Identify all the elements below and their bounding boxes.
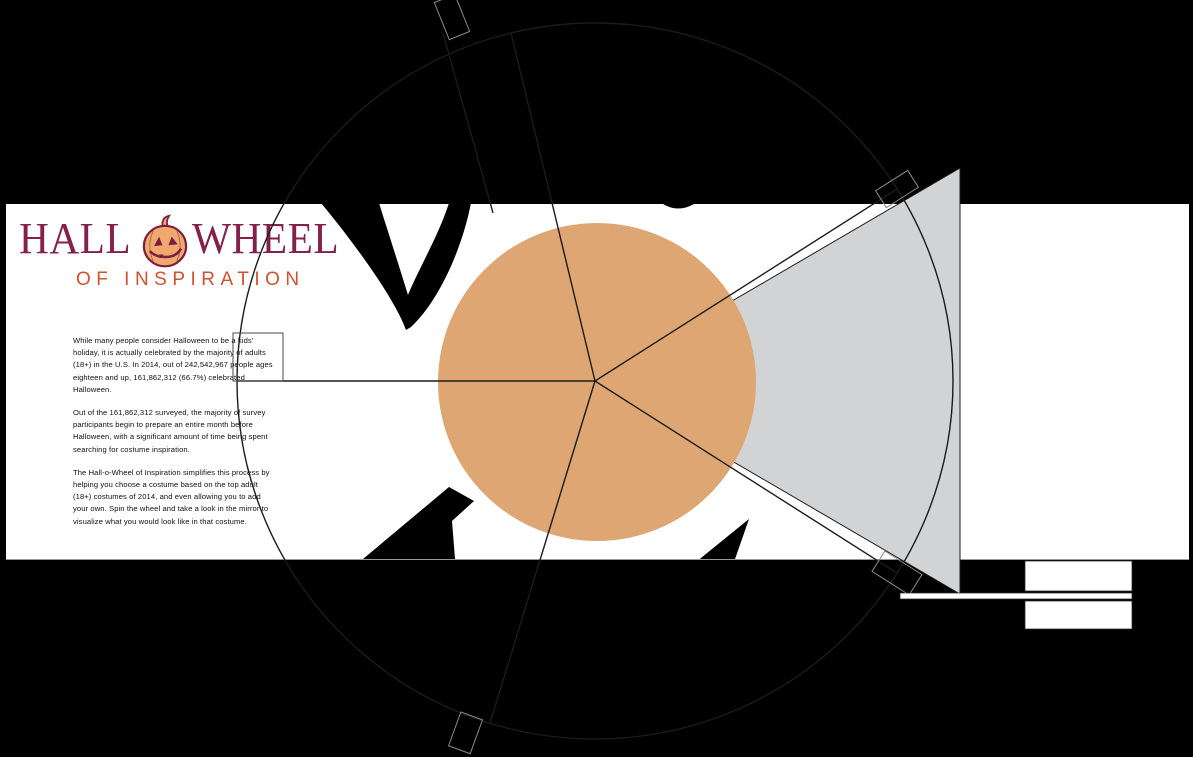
mirror-frame (900, 561, 1132, 629)
mirror-rect-bottom (1025, 601, 1132, 629)
page-subtitle: OF INSPIRATION (76, 269, 305, 291)
pumpkin-icon (139, 214, 191, 268)
title-text-left: HALL (19, 214, 131, 264)
mirror-strip (900, 593, 1132, 599)
intro-paragraph: While many people consider Halloween to … (73, 335, 274, 396)
page-title: HALL WHEEL (19, 214, 339, 264)
intro-paragraph: The Hall-o-Wheel of Inspiration simplifi… (73, 467, 274, 528)
hallowheel-poster: HALL WHEEL OF INSPIRATION While many peo… (0, 0, 1193, 757)
rim-tick-top (434, 0, 469, 40)
intro-copy: While many people consider Halloween to … (73, 335, 274, 539)
rim-tick-upper-right (876, 170, 919, 207)
pointer-stub-line (443, 33, 493, 213)
title-text-right: WHEEL (192, 214, 339, 264)
mirror-rect-top (1025, 561, 1132, 591)
rim-tick-bottom (449, 712, 483, 754)
intro-paragraph: Out of the 161,862,312 surveyed, the maj… (73, 407, 274, 456)
